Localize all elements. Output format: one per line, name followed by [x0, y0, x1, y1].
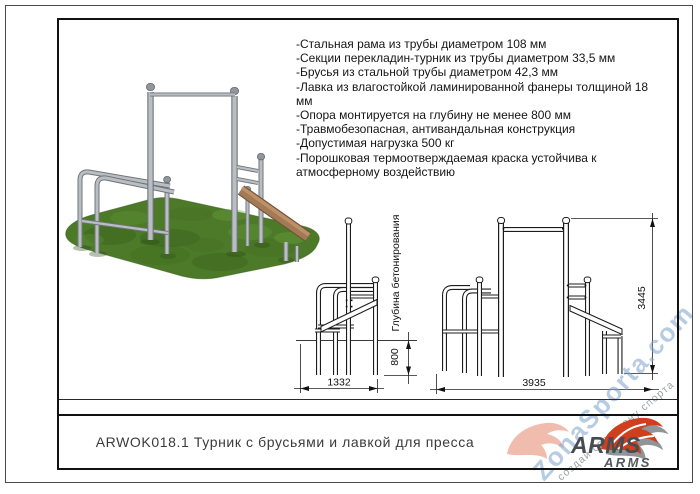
product-3d-render — [66, 84, 319, 279]
title-block-divider-thin — [59, 399, 677, 400]
logo-wordmark-small: ARMS — [603, 455, 652, 470]
spec-item: -Стальная рама из трубы диаметром 108 мм — [296, 37, 656, 51]
spec-item: -Травмобезопасная, антивандальная констр… — [296, 122, 656, 136]
front-width-dimension-value: 3935 — [522, 377, 546, 389]
side-width-dimension-value: 1332 — [327, 377, 351, 389]
spec-list: -Стальная рама из трубы диаметром 108 мм… — [296, 37, 656, 179]
spec-item: -Допустимая нагрузка 500 кг — [296, 136, 656, 150]
spec-item: -Опора монтируется на глубину не менее 8… — [296, 108, 656, 122]
spec-sheet: 800 Глубина бетонирования 1332 — [0, 0, 700, 494]
grass-patch — [66, 198, 319, 279]
depth-dimension-value: 800 — [389, 348, 401, 366]
spec-item: -Лавка из влагостойкой ламинированной фа… — [296, 80, 656, 108]
spec-item: -Порошковая термоотверждаемая краска уст… — [296, 151, 656, 179]
spec-item: -Секции перекладин-турник из трубы диаме… — [296, 51, 656, 65]
height-dimension-value: 3445 — [636, 286, 648, 310]
concreting-depth-label: Глубина бетонирования — [390, 215, 402, 332]
spec-item: -Брусья из стальной трубы диаметром 42,3… — [296, 65, 656, 79]
sheet-title: ARWOK018.1 Турник с брусьями и лавкой дл… — [57, 416, 513, 468]
